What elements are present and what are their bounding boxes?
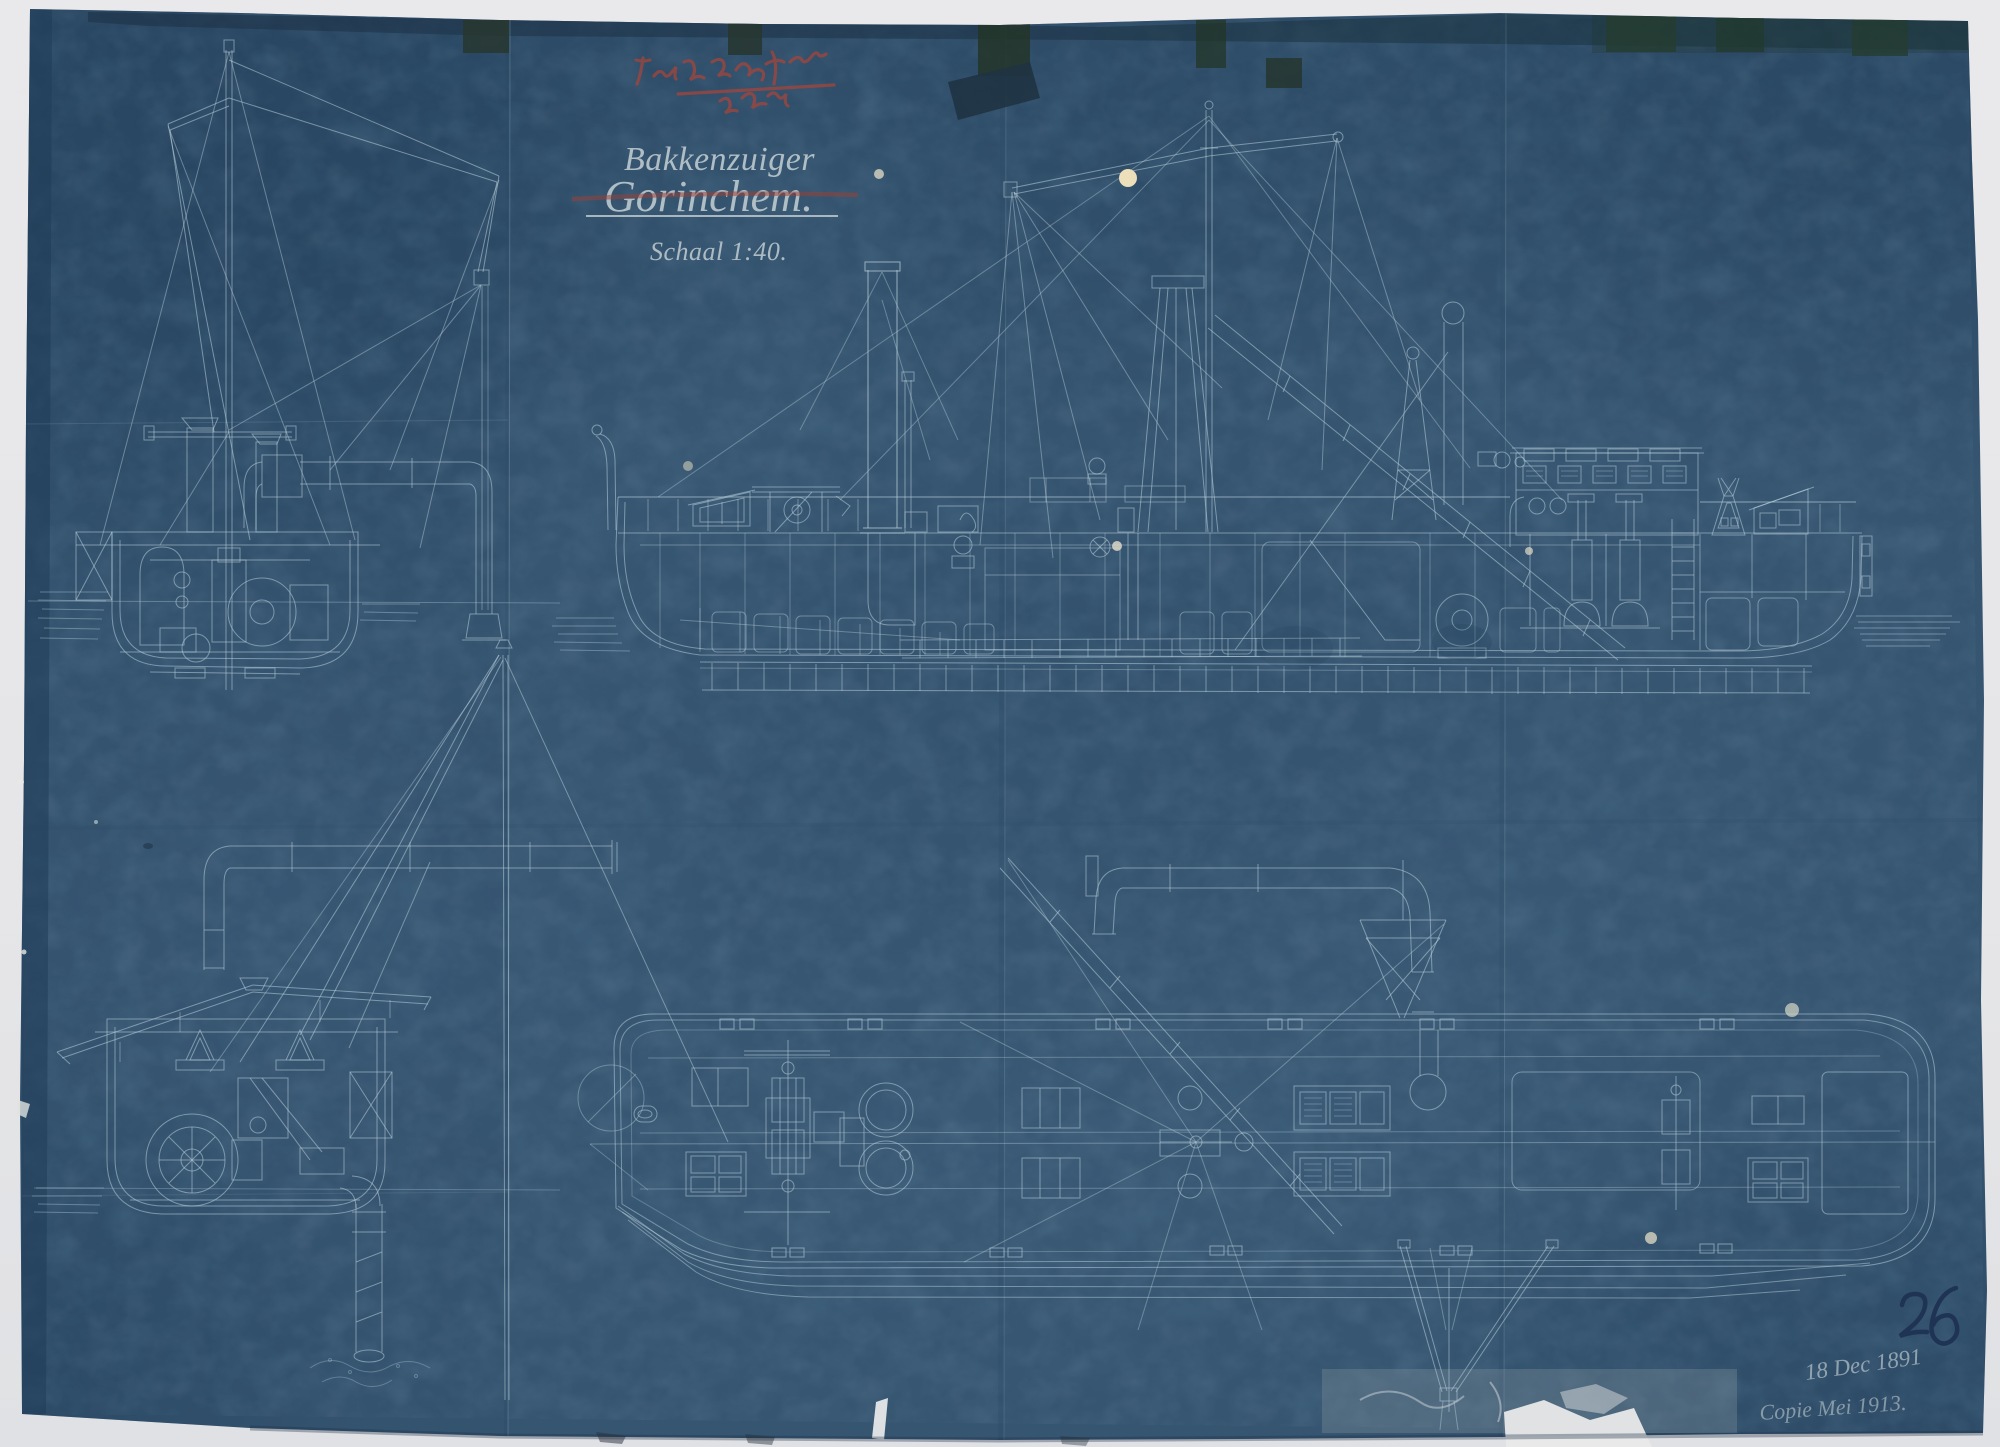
svg-text:Schaal 1:40.: Schaal 1:40. <box>650 237 787 266</box>
